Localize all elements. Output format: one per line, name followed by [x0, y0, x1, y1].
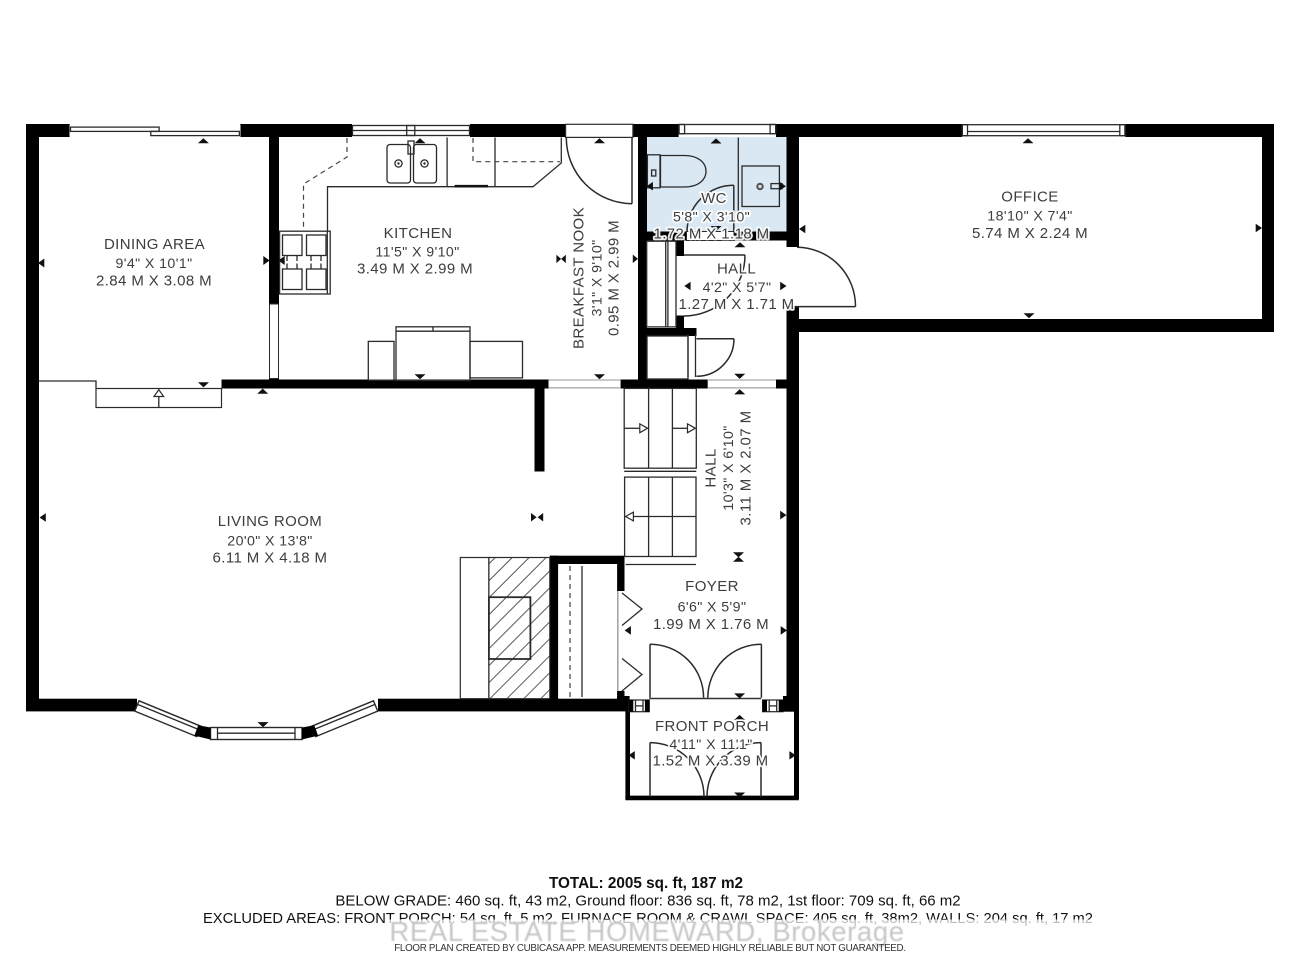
svg-text:1.72 M X 1.18 M: 1.72 M X 1.18 M [653, 226, 769, 243]
svg-text:BELOW GRADE: 460 sq. ft, 43 m2: BELOW GRADE: 460 sq. ft, 43 m2, Ground f… [335, 893, 960, 910]
svg-text:3.11 M X 2.07 M: 3.11 M X 2.07 M [738, 411, 755, 526]
svg-text:OFFICE: OFFICE [1001, 189, 1058, 206]
svg-text:KITCHEN: KITCHEN [384, 225, 453, 242]
svg-text:TOTAL: 2005 sq. ft, 187 m2: TOTAL: 2005 sq. ft, 187 m2 [549, 875, 743, 892]
svg-text:1.27 M X 1.71 M: 1.27 M X 1.71 M [678, 296, 794, 313]
svg-text:10'3" X 6'10": 10'3" X 6'10" [721, 425, 737, 510]
svg-text:9'4" X 10'1": 9'4" X 10'1" [115, 256, 192, 272]
svg-text:4'2" X 5'7": 4'2" X 5'7" [703, 280, 772, 296]
svg-text:4'11" X 11'1": 4'11" X 11'1" [669, 737, 752, 753]
svg-text:5.74 M X 2.24 M: 5.74 M X 2.24 M [972, 225, 1088, 242]
svg-text:5'8" X 3'10": 5'8" X 3'10" [673, 210, 750, 226]
svg-text:HALL: HALL [717, 261, 756, 278]
svg-text:FOYER: FOYER [685, 578, 739, 595]
svg-text:HALL: HALL [703, 448, 720, 487]
svg-text:DINING AREA: DINING AREA [104, 236, 205, 253]
svg-text:3.49 M X 2.99 M: 3.49 M X 2.99 M [357, 261, 473, 278]
svg-text:6.11 M X 4.18 M: 6.11 M X 4.18 M [213, 550, 328, 567]
svg-text:2.84 M X 3.08 M: 2.84 M X 3.08 M [96, 273, 212, 290]
svg-text:20'0" X 13'8": 20'0" X 13'8" [227, 534, 312, 550]
svg-text:FLOOR PLAN CREATED BY CUBICASA: FLOOR PLAN CREATED BY CUBICASA APP. MEAS… [394, 943, 906, 954]
svg-text:3'1" X 9'10": 3'1" X 9'10" [590, 239, 606, 316]
svg-text:BREAKFAST NOOK: BREAKFAST NOOK [571, 207, 588, 349]
svg-text:1.99 M X 1.76 M: 1.99 M X 1.76 M [653, 616, 769, 633]
svg-text:1.52 M X 3.39 M: 1.52 M X 3.39 M [652, 753, 768, 770]
svg-text:11'5" X 9'10": 11'5" X 9'10" [375, 245, 459, 261]
svg-text:0.95 M X 2.99 M: 0.95 M X 2.99 M [606, 220, 623, 336]
svg-text:FRONT PORCH: FRONT PORCH [655, 718, 769, 735]
svg-text:18'10" X 7'4": 18'10" X 7'4" [987, 209, 1072, 225]
svg-text:6'6" X 5'9": 6'6" X 5'9" [678, 600, 747, 616]
svg-text:WC: WC [701, 190, 727, 207]
svg-text:LIVING ROOM: LIVING ROOM [218, 513, 322, 530]
